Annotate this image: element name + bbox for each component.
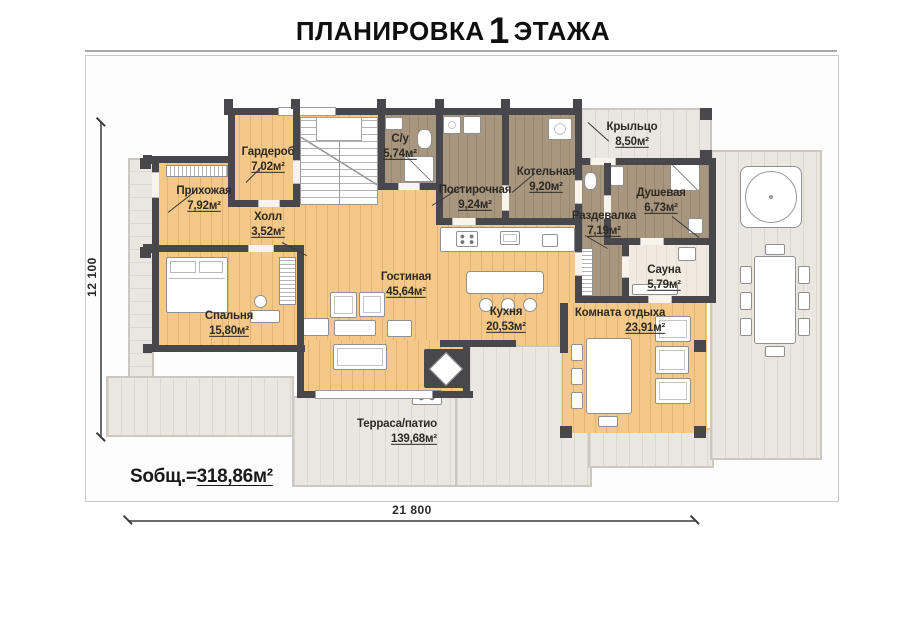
chair	[571, 392, 583, 409]
bed	[166, 257, 228, 313]
toilet	[417, 129, 432, 149]
terrace-post	[140, 158, 151, 169]
room-label-kitchen: Кухня20,53м²	[486, 305, 526, 335]
wardrobe-cabinet	[279, 257, 296, 305]
log-end	[224, 99, 233, 109]
room-label-porch: Крыльцо8,50м²	[607, 120, 658, 150]
door-opening	[648, 296, 672, 303]
kitchen-island	[466, 271, 544, 294]
coffee-table	[334, 320, 376, 336]
room-label-changing: Раздевалка7,19м²	[572, 209, 636, 239]
room-label-boiler: Котельная9,20м²	[517, 165, 575, 195]
desk	[250, 310, 280, 323]
title-divider	[85, 50, 837, 52]
veranda-post	[694, 426, 706, 438]
room-label-bedroom: Спальня15,80м²	[205, 309, 253, 339]
room-label-bathroom: С/у5,74м²	[383, 132, 417, 162]
dryer	[463, 116, 481, 134]
chair	[598, 416, 618, 427]
door-opening	[590, 158, 616, 165]
lounge-sofa	[655, 378, 691, 404]
hot-tub	[740, 166, 802, 228]
wall-segment	[709, 158, 716, 303]
log-end	[291, 99, 300, 109]
wall-segment	[560, 303, 568, 353]
veranda-post	[560, 426, 572, 438]
title-prefix: ПЛАНИРОВКА	[296, 16, 485, 46]
door-opening	[575, 180, 582, 204]
terrace-bottom-left	[106, 376, 294, 437]
door-opening	[622, 256, 629, 278]
outdoor-dining-table	[754, 256, 796, 344]
chair	[740, 266, 752, 284]
entry-closet	[166, 165, 228, 177]
room-label-wardrobe: Гардероб7,02м²	[242, 145, 295, 175]
room-label-terrace: Терраса/патио139,68м²	[357, 417, 437, 447]
entry-door-opening	[152, 172, 159, 198]
page-title: ПЛАНИРОВКА1ЭТАЖА	[0, 10, 906, 52]
stove	[456, 231, 478, 247]
dimension-line-horizontal	[128, 520, 695, 522]
log-end	[435, 99, 444, 109]
dimension-line-vertical	[100, 122, 102, 437]
sofa	[333, 344, 387, 370]
pillow	[199, 261, 223, 273]
drain	[769, 195, 773, 199]
wall-segment	[463, 345, 470, 398]
chair	[765, 244, 785, 255]
dining-table	[586, 338, 632, 414]
corner-fireplace	[424, 349, 466, 388]
room-label-hall: Холл3,52м²	[251, 210, 285, 240]
sink	[385, 117, 403, 130]
log-end	[377, 99, 386, 109]
door-opening	[452, 218, 476, 225]
room-label-hallway: Прихожая7,92м²	[176, 184, 231, 214]
sink	[610, 166, 624, 186]
lounge-sofa	[655, 346, 689, 374]
boiler-unit	[548, 118, 572, 140]
floor-plan-page: ПЛАНИРОВКА1ЭТАЖА	[0, 0, 906, 630]
total-area: Sобщ.=318,86м²	[130, 466, 273, 488]
porch-post	[700, 150, 712, 162]
log-end	[143, 344, 152, 353]
log-end	[573, 99, 582, 109]
washing-machine	[443, 116, 461, 134]
pillow	[170, 261, 196, 273]
door-opening	[248, 245, 274, 252]
door-opening	[398, 183, 420, 190]
wall-segment	[152, 245, 304, 252]
window	[278, 107, 336, 116]
blanket-line	[169, 278, 225, 279]
armchair	[330, 292, 357, 318]
wall-segment	[440, 340, 516, 347]
dimension-width: 21 800	[392, 503, 432, 517]
terrace-post	[140, 247, 151, 258]
chair	[798, 266, 810, 284]
door-opening	[640, 238, 664, 245]
chair	[740, 318, 752, 336]
chair	[740, 292, 752, 310]
door-opening	[258, 200, 280, 207]
door-opening	[575, 252, 582, 276]
oven	[542, 234, 558, 247]
total-area-label: Sобщ.=	[130, 466, 197, 487]
desk-chair	[254, 295, 267, 308]
chair	[798, 292, 810, 310]
title-floor-number: 1	[489, 10, 510, 51]
chair	[571, 344, 583, 361]
wall-segment	[152, 156, 234, 163]
wall-segment	[297, 245, 304, 398]
room-label-sauna: Сауна5,79м²	[647, 263, 681, 293]
veranda-post	[694, 340, 706, 352]
side-chair	[387, 320, 412, 337]
sauna-stove	[678, 247, 696, 261]
stair-landing	[316, 117, 362, 141]
porch-post	[700, 108, 712, 120]
side-chair	[303, 318, 329, 336]
chair	[571, 368, 583, 385]
title-suffix: ЭТАЖА	[514, 16, 610, 46]
room-label-living: Гостиная45,64м²	[381, 270, 431, 300]
wall-segment	[578, 296, 716, 303]
wall-segment	[152, 345, 305, 352]
room-label-laundry: Постирочная9,24м²	[439, 183, 512, 213]
total-area-value: 318,86м²	[197, 466, 273, 487]
room-label-shower: Душевая6,73м²	[636, 186, 685, 216]
kitchen-sink	[500, 231, 520, 245]
panoramic-window	[315, 390, 433, 399]
toilet	[584, 172, 597, 190]
log-end	[501, 99, 510, 109]
chair	[798, 318, 810, 336]
dimension-height: 12 100	[85, 257, 99, 297]
chair	[765, 346, 785, 357]
room-label-lounge: Комната отдыха23,91м²	[575, 306, 665, 336]
